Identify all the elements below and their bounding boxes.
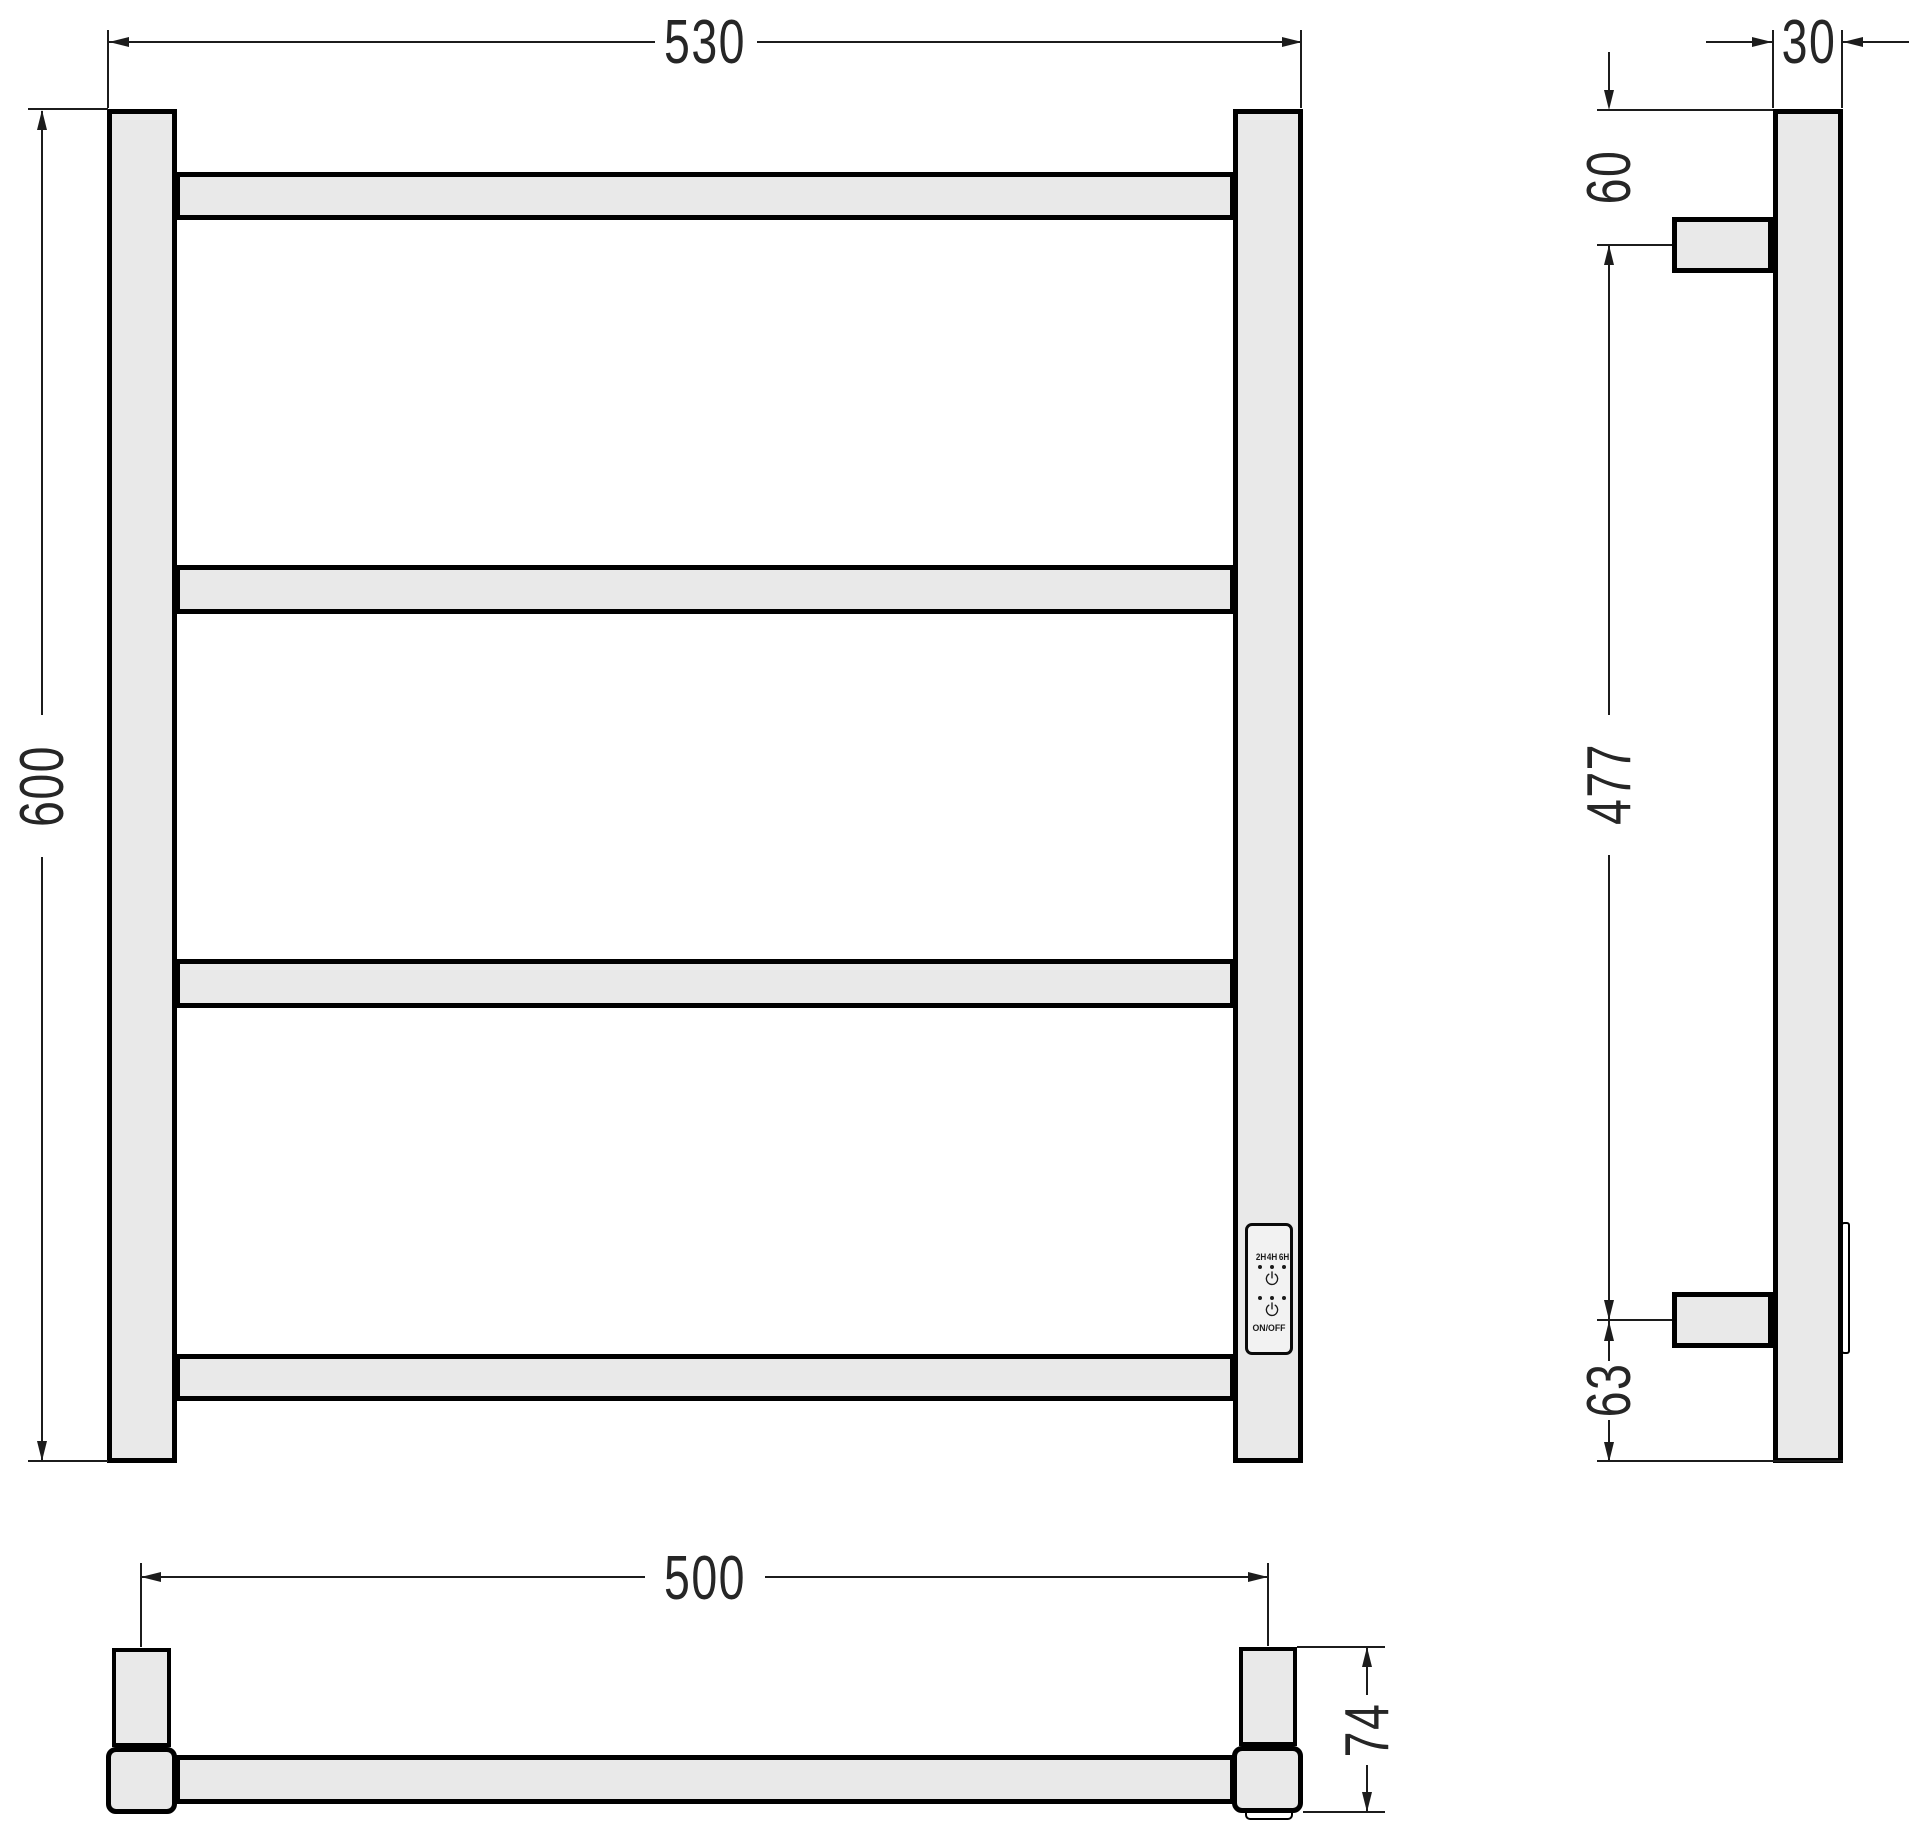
arrowhead bbox=[1843, 37, 1863, 47]
side-lower-bracket bbox=[1672, 1292, 1773, 1348]
timer-power-icon bbox=[1263, 1270, 1281, 1293]
dim-line-477 bbox=[1608, 855, 1610, 1320]
dim-line-600 bbox=[41, 111, 43, 715]
dim-60-label: 60 bbox=[1579, 150, 1641, 205]
dim-line-500 bbox=[141, 1576, 645, 1578]
dim-line-63 bbox=[1608, 1321, 1610, 1361]
front-left-post bbox=[107, 109, 177, 1463]
dim-30-label: 30 bbox=[1782, 12, 1837, 74]
front-rung-1 bbox=[175, 172, 1235, 220]
timer-dot bbox=[1258, 1265, 1262, 1269]
technical-drawing-canvas: 2H 4H 6H ON/OFF 530 600 bbox=[0, 0, 1920, 1840]
timer-6h-label: 6H bbox=[1279, 1253, 1289, 1262]
dim-line-530 bbox=[757, 41, 1302, 43]
bottom-rung bbox=[175, 1755, 1235, 1804]
dim-line-530 bbox=[109, 41, 655, 43]
dim-line-477 bbox=[1608, 245, 1610, 715]
bottom-right-bracket bbox=[1239, 1647, 1297, 1746]
timer-dot bbox=[1282, 1265, 1286, 1269]
arrowhead bbox=[37, 110, 47, 130]
arrowhead bbox=[1604, 1300, 1614, 1320]
arrowhead bbox=[1752, 37, 1772, 47]
bottom-right-post-cap bbox=[1232, 1746, 1303, 1813]
dim-line-60 bbox=[1608, 52, 1610, 92]
dim-74-label: 74 bbox=[1337, 1703, 1399, 1758]
dim-line-74 bbox=[1366, 1647, 1368, 1695]
arrowhead bbox=[109, 37, 129, 47]
bottom-left-post-cap bbox=[106, 1747, 177, 1814]
ref-line bbox=[1597, 1460, 1843, 1462]
level-dot bbox=[1282, 1296, 1286, 1300]
arrowhead bbox=[1604, 1442, 1614, 1462]
dim-line-500 bbox=[765, 1576, 1268, 1578]
dim-line-600 bbox=[41, 857, 43, 1461]
ext-line bbox=[1772, 30, 1774, 108]
level-dot bbox=[1270, 1296, 1274, 1300]
side-upper-bracket bbox=[1672, 217, 1773, 273]
front-rung-4 bbox=[175, 1354, 1235, 1401]
control-panel: 2H 4H 6H ON/OFF bbox=[1245, 1223, 1293, 1355]
dim-477-label: 477 bbox=[1579, 743, 1641, 825]
ref-line bbox=[1303, 1811, 1385, 1813]
arrowhead bbox=[1282, 37, 1302, 47]
onoff-power-icon bbox=[1263, 1301, 1281, 1324]
timer-4h-label: 4H bbox=[1267, 1253, 1277, 1262]
front-rung-2 bbox=[175, 565, 1235, 614]
front-rung-3 bbox=[175, 959, 1235, 1008]
dim-600-label: 600 bbox=[12, 745, 74, 827]
side-post-bar bbox=[1773, 109, 1843, 1463]
onoff-label: ON/OFF bbox=[1252, 1324, 1285, 1334]
ref-line bbox=[1597, 109, 1773, 111]
dim-500-label: 500 bbox=[664, 1548, 746, 1610]
side-control-panel-edge bbox=[1841, 1222, 1850, 1354]
timer-2h-label: 2H bbox=[1256, 1253, 1266, 1262]
dim-530-label: 530 bbox=[664, 12, 746, 74]
arrowhead bbox=[1248, 1572, 1268, 1582]
level-dot bbox=[1258, 1296, 1262, 1300]
bottom-left-bracket bbox=[112, 1648, 171, 1747]
arrowhead bbox=[37, 1441, 47, 1461]
dim-63-label: 63 bbox=[1579, 1363, 1641, 1418]
arrowhead bbox=[1604, 90, 1614, 110]
arrowhead bbox=[141, 1572, 161, 1582]
timer-dot bbox=[1270, 1265, 1274, 1269]
arrowhead bbox=[1362, 1792, 1372, 1812]
